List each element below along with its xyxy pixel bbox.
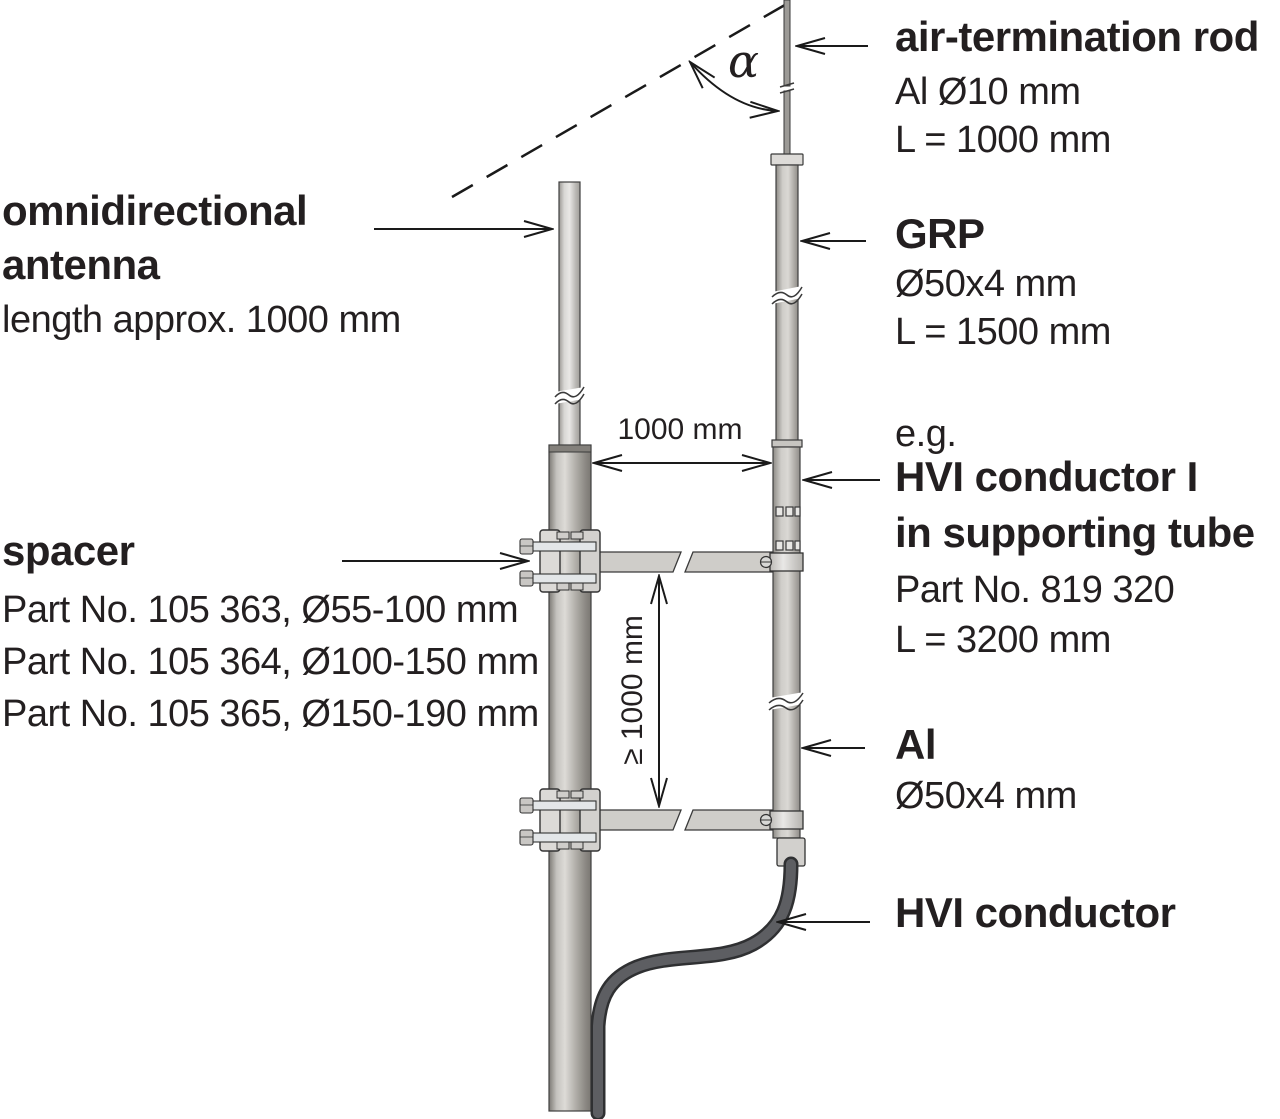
spacer-label-part1: Part No. 105 363, Ø55-100 mm bbox=[2, 591, 518, 629]
antenna-mast-diagram bbox=[0, 0, 1280, 1119]
angle-alpha-symbol: α bbox=[728, 38, 759, 84]
hvi-tube-label-title1: HVI conductor I bbox=[895, 456, 1198, 498]
dimension-vertical-text: ≥ 1000 mm bbox=[618, 615, 648, 765]
antenna-label-detail: length approx. 1000 mm bbox=[2, 301, 401, 339]
dimension-horizontal-text: 1000 mm bbox=[617, 415, 742, 445]
spacer-label-title: spacer bbox=[2, 530, 134, 572]
spacer-bar-upper-left bbox=[596, 552, 681, 572]
spacer-clamp-upper bbox=[520, 530, 600, 592]
air-termination-rod bbox=[780, 0, 794, 157]
spacer-bar-lower-right bbox=[685, 810, 772, 830]
al-label-title: Al bbox=[895, 724, 936, 766]
spacer-bar-lower-left bbox=[596, 810, 681, 830]
protection-angle-dashed-line bbox=[452, 2, 790, 197]
hvi-tube-label-length: L = 3200 mm bbox=[895, 621, 1111, 659]
spacer-label-part3: Part No. 105 365, Ø150-190 mm bbox=[2, 695, 539, 733]
omnidirectional-antenna bbox=[555, 182, 584, 448]
air-rod-label-detail2: L = 1000 mm bbox=[895, 121, 1111, 159]
diagram-page: omnidirectional antenna length approx. 1… bbox=[0, 0, 1280, 1119]
grp-label-title: GRP bbox=[895, 213, 985, 255]
al-label-detail: Ø50x4 mm bbox=[895, 777, 1077, 815]
air-rod-label-title: air-termination rod bbox=[895, 16, 1259, 58]
antenna-label-line1: omnidirectional bbox=[2, 190, 307, 232]
spacer-label-part2: Part No. 105 364, Ø100-150 mm bbox=[2, 643, 539, 681]
air-rod-label-detail1: Al Ø10 mm bbox=[895, 73, 1081, 111]
hvi-conductor-cable bbox=[598, 864, 791, 1113]
spacer-bar-upper-right bbox=[685, 552, 772, 572]
grp-tube bbox=[772, 165, 802, 443]
hvi-tube-label-prefix: e.g. bbox=[895, 415, 956, 453]
antenna-label-line2: antenna bbox=[2, 244, 160, 286]
hvi-tube-label-title2: in supporting tube bbox=[895, 512, 1255, 554]
hvi-conductor-label: HVI conductor bbox=[895, 892, 1176, 934]
tube-joint bbox=[772, 440, 802, 447]
grp-top-collar bbox=[771, 154, 803, 165]
spacer-clamp-lower bbox=[520, 789, 600, 851]
supporting-tube bbox=[769, 447, 804, 838]
grp-label-detail1: Ø50x4 mm bbox=[895, 265, 1077, 303]
hvi-tube-label-part: Part No. 819 320 bbox=[895, 571, 1174, 609]
grp-label-detail2: L = 1500 mm bbox=[895, 313, 1111, 351]
